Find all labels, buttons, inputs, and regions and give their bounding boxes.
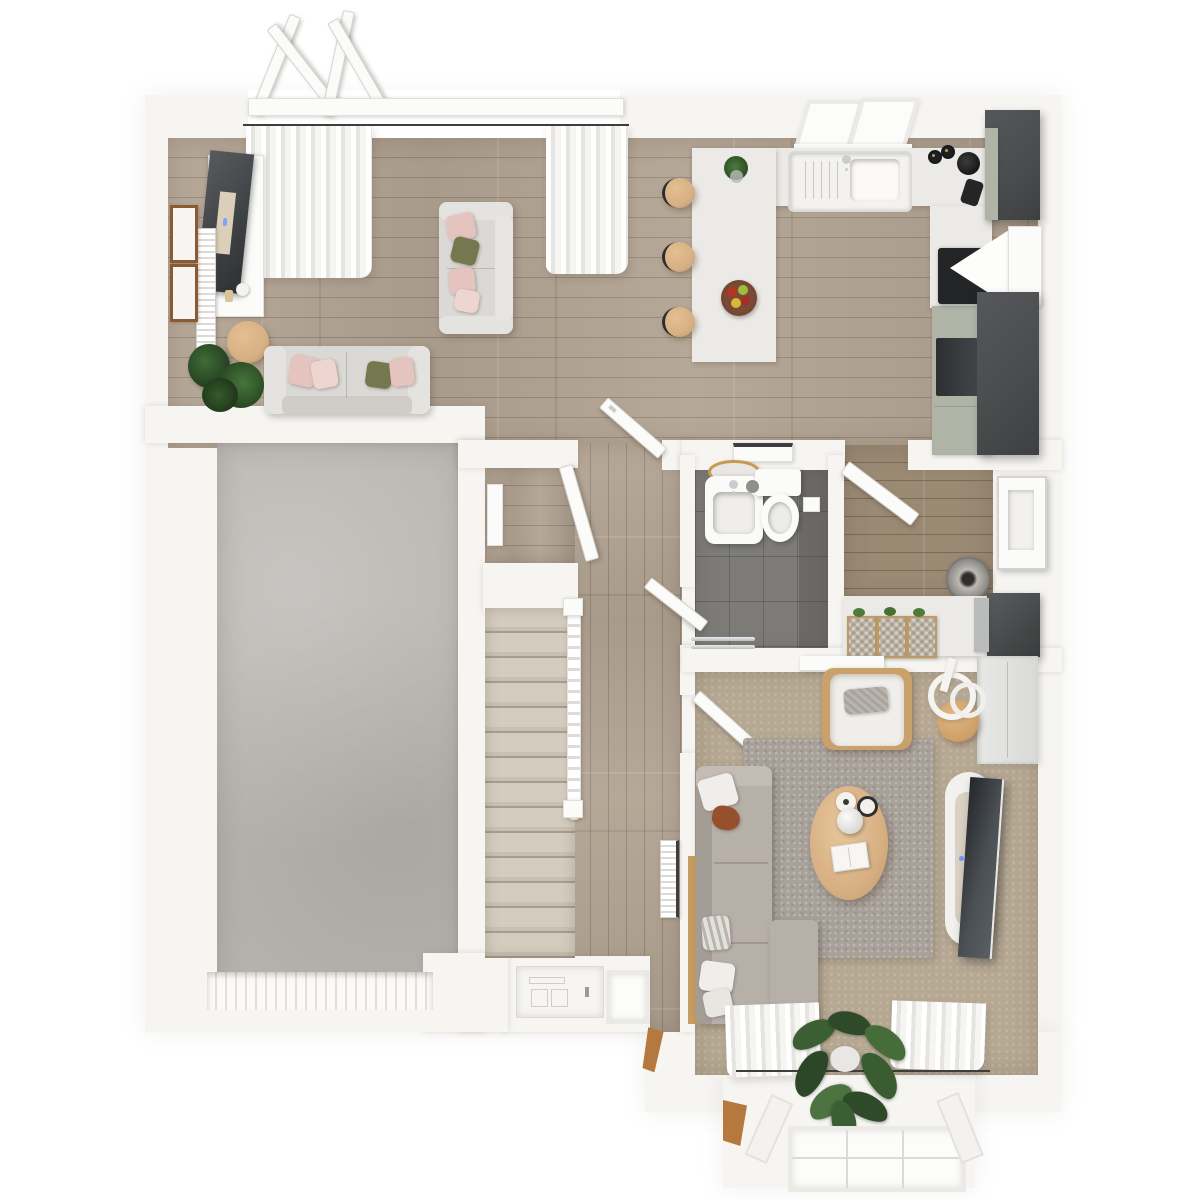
toilet-brush xyxy=(746,480,759,493)
wall-bath-utility xyxy=(828,455,844,655)
door-handle-icon xyxy=(585,987,589,997)
hall-shelf xyxy=(733,443,793,462)
storage-cupboard xyxy=(977,656,1038,764)
newel-post xyxy=(563,598,583,616)
lumbar-pillow xyxy=(843,686,889,715)
laundry-basket xyxy=(946,557,990,601)
bar-stool xyxy=(662,178,695,208)
fruit-bowl xyxy=(721,280,757,316)
sofa-backrest xyxy=(282,396,412,414)
round-pouf xyxy=(227,321,269,363)
sink-basin xyxy=(713,492,755,534)
wicker-basket xyxy=(907,616,937,658)
closet-shelf xyxy=(487,484,503,546)
herb-sprig xyxy=(884,607,896,616)
faucet-icon xyxy=(729,480,738,489)
curtain-bottom-right xyxy=(890,1000,986,1071)
arc-lamp-shade xyxy=(950,682,986,718)
banister-rail xyxy=(567,604,581,820)
pillow-blush xyxy=(453,288,480,314)
herb-sprig xyxy=(913,608,925,617)
towel-rail xyxy=(691,645,755,649)
picture-frame xyxy=(170,205,198,263)
potted-plant xyxy=(202,378,238,412)
washing-machine xyxy=(987,593,1040,657)
fruit-green xyxy=(738,285,748,295)
staircase xyxy=(485,608,575,958)
porch-sidelight-window xyxy=(606,970,650,1024)
candle xyxy=(225,290,233,302)
wall-dining-hall-left xyxy=(458,440,578,468)
window-mullion xyxy=(902,1130,904,1188)
wicker-basket xyxy=(877,616,907,658)
curtain-left xyxy=(246,126,372,278)
brass-top xyxy=(945,149,948,152)
salt-pepper-mill xyxy=(941,145,955,159)
cushion-seam xyxy=(346,352,347,398)
radiator-lounge xyxy=(196,228,216,354)
utility-back-door xyxy=(997,476,1047,570)
brass-top xyxy=(932,154,935,157)
wall-garage-hallway xyxy=(458,440,485,1032)
window-mullion xyxy=(792,1157,962,1159)
newel-post xyxy=(563,800,583,818)
appliance-side-box xyxy=(974,598,989,652)
salt-pepper-mill xyxy=(928,150,942,164)
book-spine xyxy=(848,847,852,867)
door-groove xyxy=(529,977,565,984)
picture-frame xyxy=(170,264,198,322)
front-door xyxy=(516,966,604,1018)
cupboard-door-seam xyxy=(1007,662,1008,758)
kettle xyxy=(957,152,980,175)
cushion-seam xyxy=(714,862,768,864)
herb-sprig xyxy=(853,608,865,617)
armchair xyxy=(822,668,912,750)
sink-basin xyxy=(850,159,900,201)
fruit-red xyxy=(741,296,750,305)
vase-hole xyxy=(843,799,849,805)
tall-pantry-oven-unit xyxy=(977,292,1039,455)
door-glass xyxy=(1008,490,1034,550)
oven xyxy=(936,338,978,396)
oval-coffee-table xyxy=(810,786,888,900)
garage-threshold xyxy=(200,1010,440,1032)
faucet-icon xyxy=(842,155,851,164)
pillow-striped xyxy=(701,915,731,951)
toilet-paper-holder xyxy=(803,497,820,512)
fruit-yellow xyxy=(731,298,741,308)
kitchen-sink xyxy=(788,151,912,212)
door-panel xyxy=(531,989,548,1007)
toilet-cistern xyxy=(755,469,801,496)
wicker-basket xyxy=(847,616,877,658)
radiator-hallway xyxy=(660,840,679,918)
bar-stool xyxy=(662,307,695,337)
door-panel xyxy=(551,989,568,1007)
fruit-red xyxy=(727,287,737,297)
vase-glass xyxy=(730,170,743,183)
toilet-seat xyxy=(768,502,792,534)
garage-door xyxy=(207,972,433,1012)
sink-drainer-lines xyxy=(798,161,844,199)
patio-door-rail xyxy=(248,98,624,116)
plant-pot xyxy=(830,1046,860,1072)
floor-plan xyxy=(0,0,1200,1200)
window-mullion xyxy=(846,1130,848,1188)
bay-window-glass xyxy=(788,1126,966,1192)
curtain-right xyxy=(546,126,628,274)
pillow-pink xyxy=(389,357,416,387)
sofa-backrest xyxy=(495,216,513,320)
bar-stool xyxy=(662,242,695,272)
garage-concrete-floor xyxy=(217,443,465,1005)
wall-hall-bath-upper xyxy=(680,455,695,587)
sphere-ornament xyxy=(837,808,863,834)
door-handle-icon xyxy=(608,405,617,413)
cup xyxy=(236,283,249,296)
book xyxy=(830,842,869,873)
pillow-blush xyxy=(310,358,339,390)
tall-unit-side xyxy=(985,128,998,220)
led-dot xyxy=(959,856,964,861)
towel-rail xyxy=(691,637,755,641)
